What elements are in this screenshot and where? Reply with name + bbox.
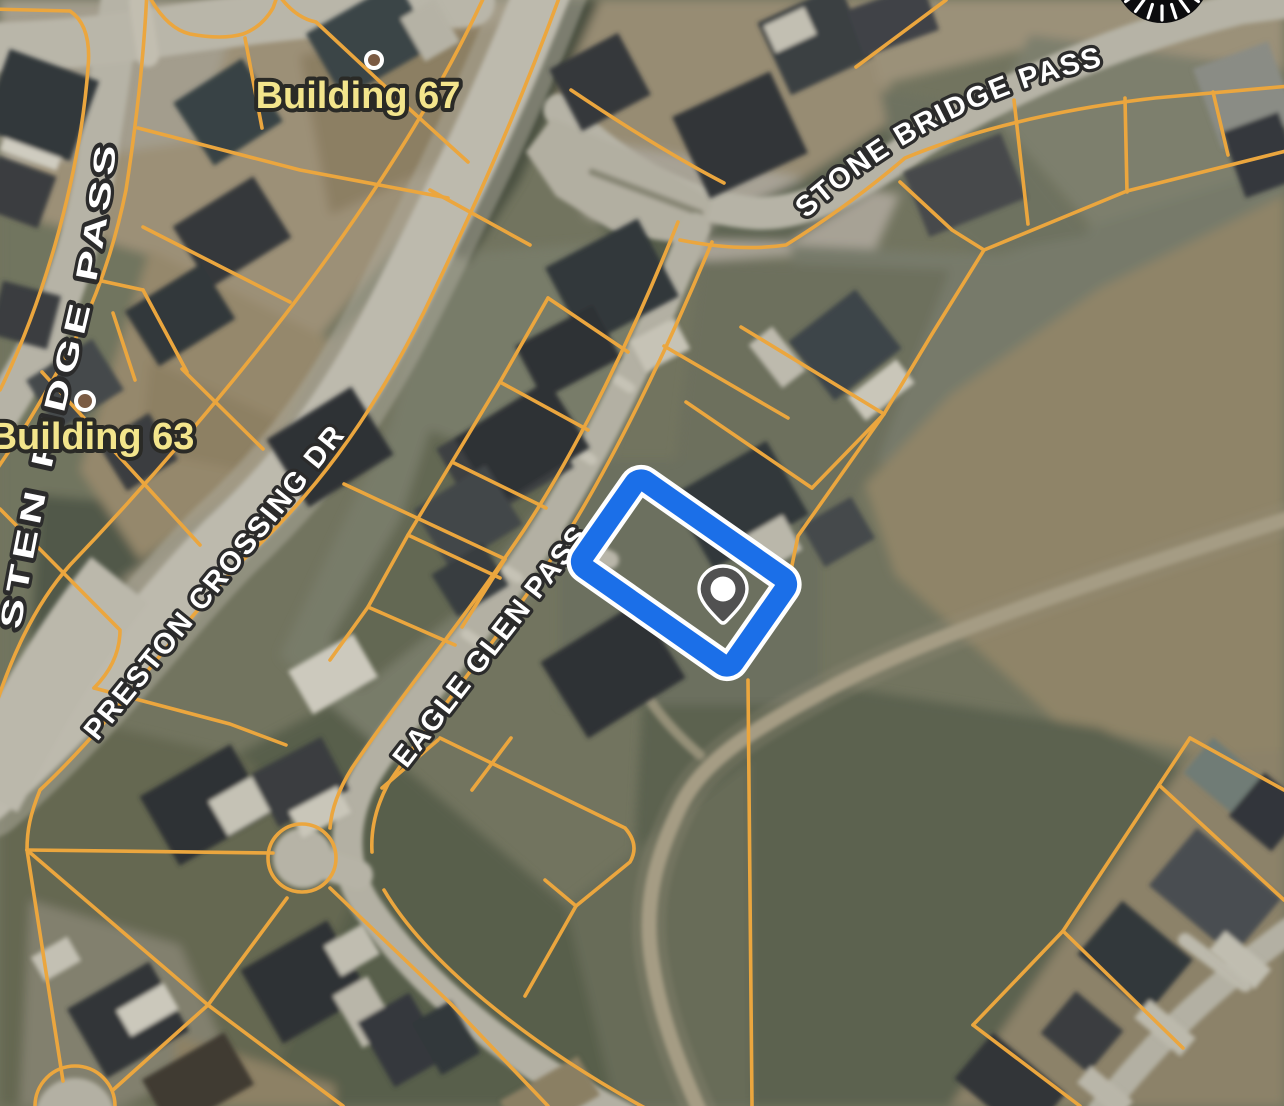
svg-text:Building 67: Building 67 [256, 75, 461, 117]
svg-text:Building 63: Building 63 [0, 416, 194, 458]
